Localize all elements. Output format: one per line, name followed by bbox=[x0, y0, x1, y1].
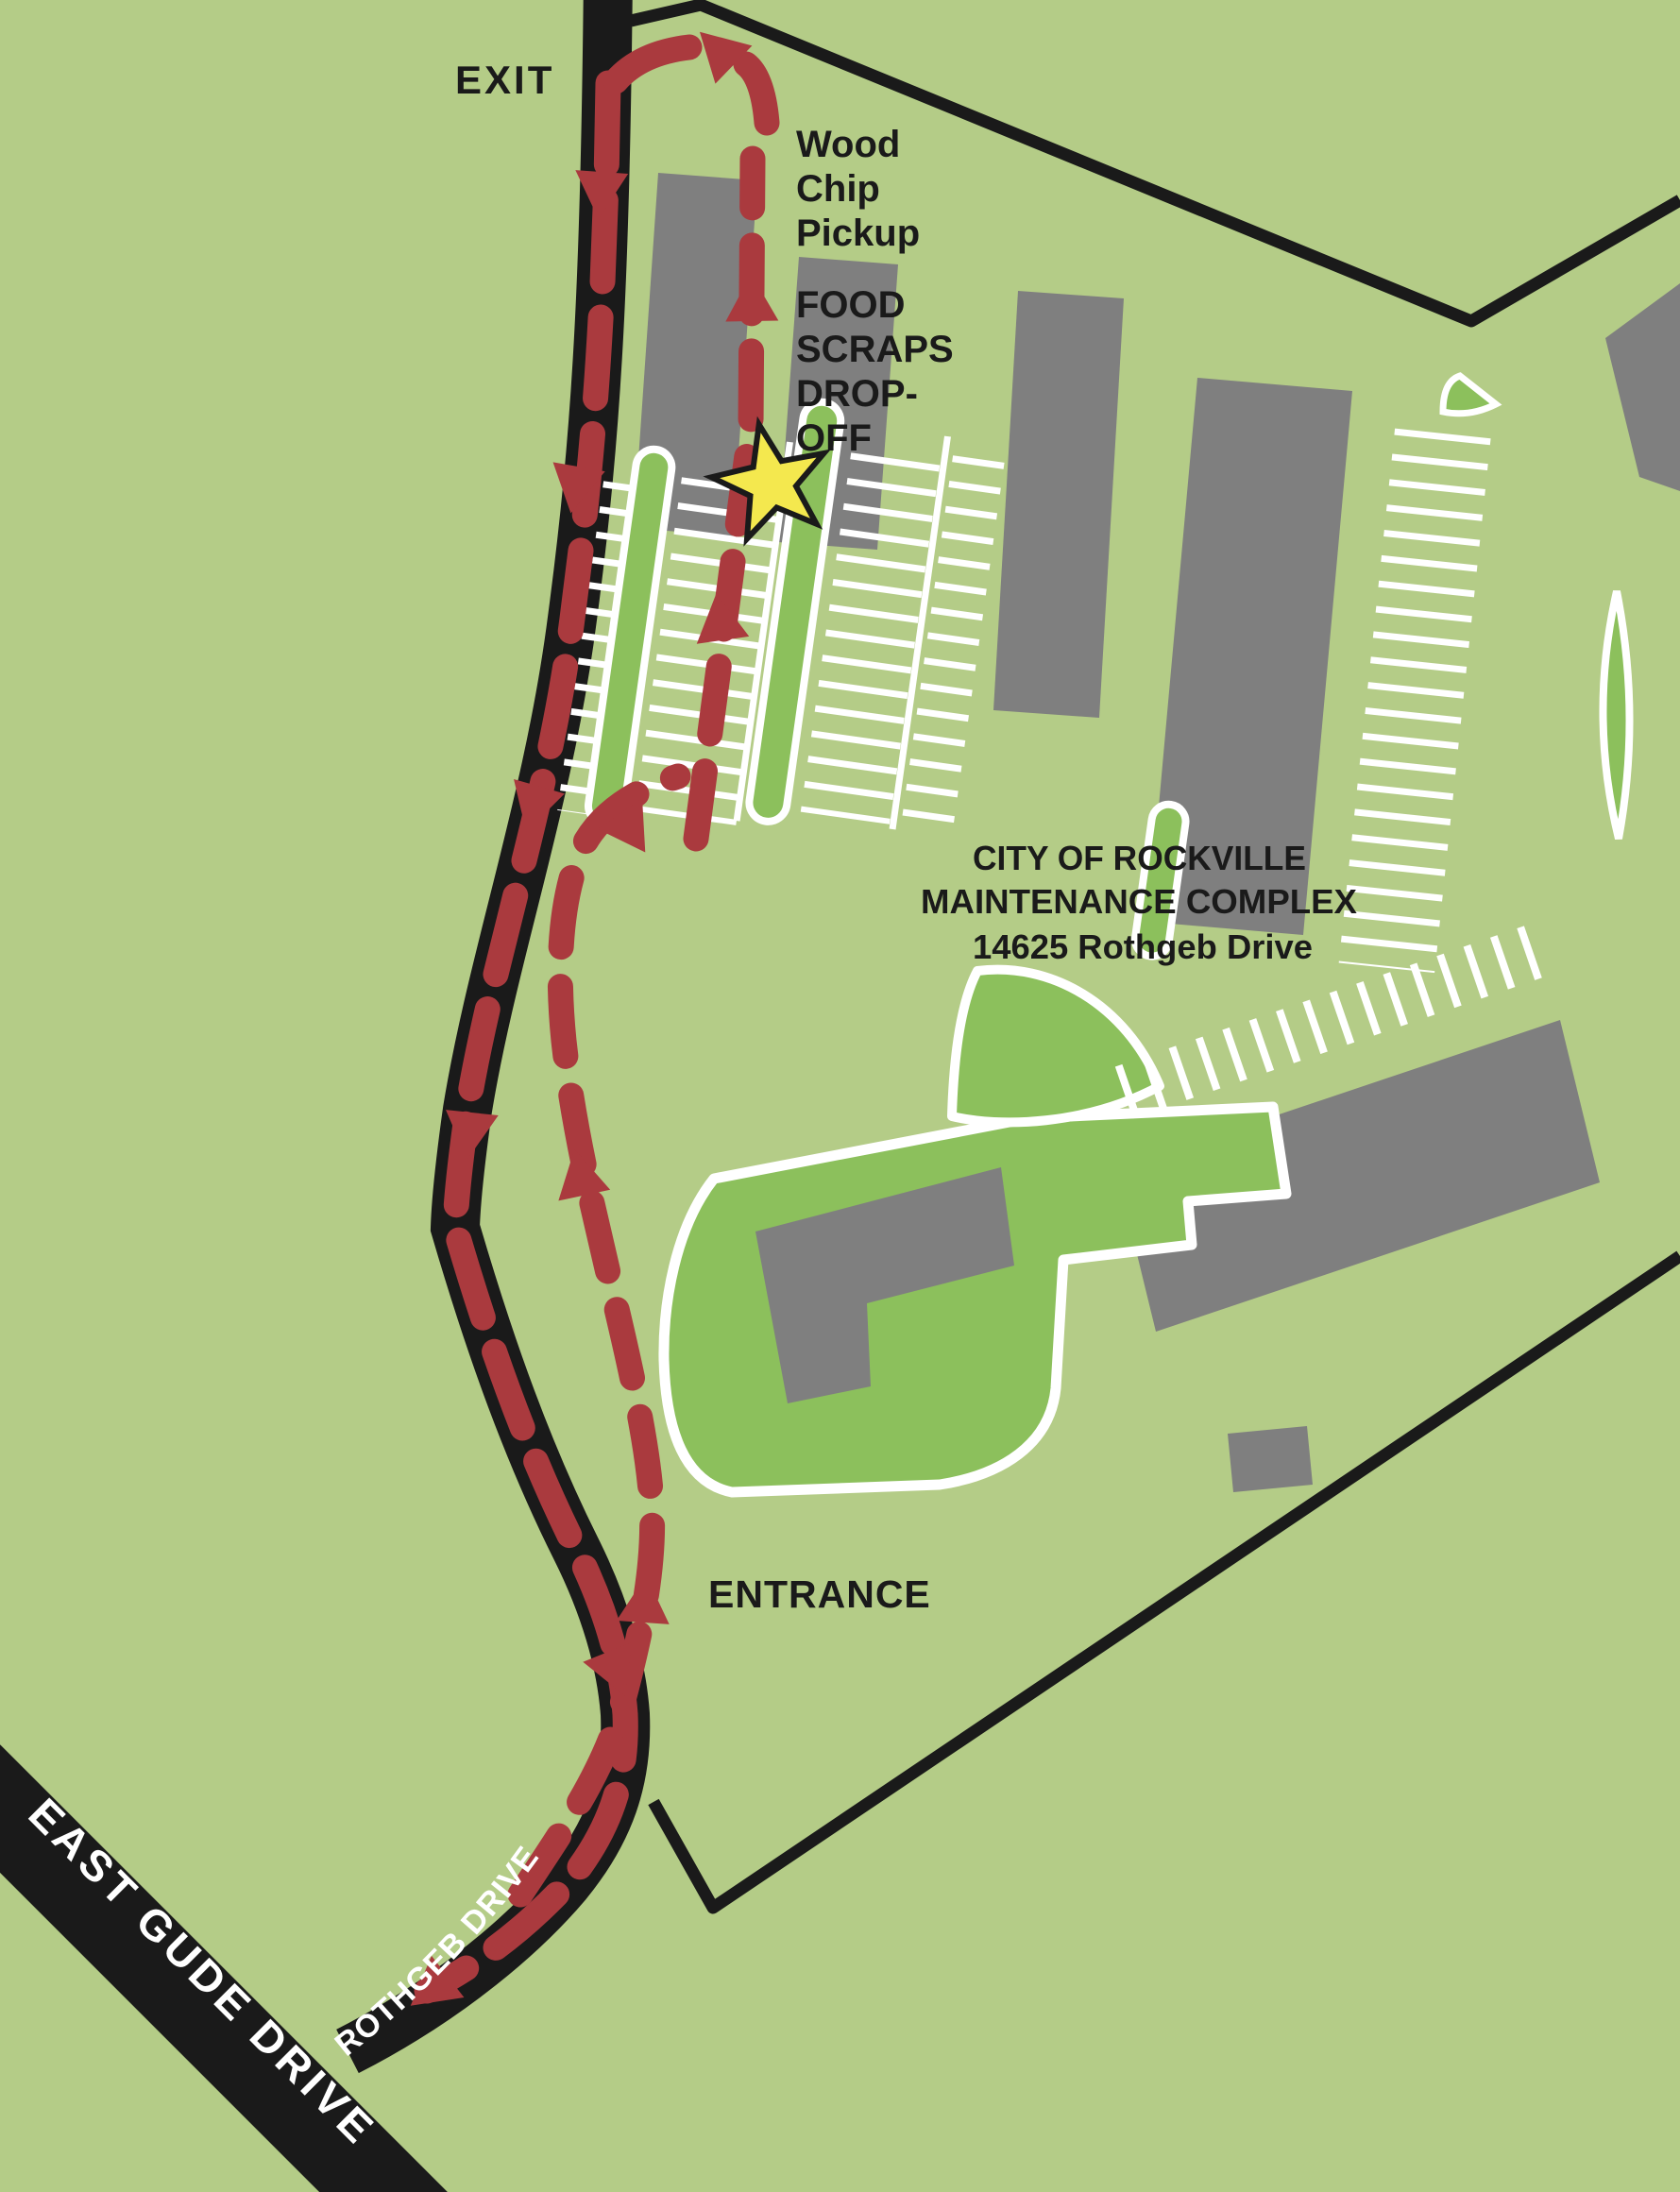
complex-title-line1: CITY OF ROCKVILLE bbox=[973, 839, 1306, 877]
food-scraps-line2: SCRAPS bbox=[796, 329, 954, 370]
complex-title-block: CITY OF ROCKVILLE MAINTENANCE COMPLEX 14… bbox=[921, 839, 1357, 966]
wood-chip-line1: Wood bbox=[796, 124, 900, 165]
rockville-maintenance-complex-map: EXIT Wood Chip Pickup FOOD SCRAPS DROP- … bbox=[0, 0, 1680, 2192]
complex-title-line2: MAINTENANCE COMPLEX bbox=[921, 882, 1357, 921]
exit-label: EXIT bbox=[455, 58, 554, 102]
map-canvas: EXIT Wood Chip Pickup FOOD SCRAPS DROP- … bbox=[0, 0, 1680, 2192]
building-small-square bbox=[1228, 1426, 1313, 1492]
wood-chip-line3: Pickup bbox=[796, 212, 920, 254]
food-scraps-line4: OFF bbox=[796, 417, 872, 459]
wood-chip-line2: Chip bbox=[796, 168, 880, 210]
food-scraps-line1: FOOD bbox=[796, 284, 906, 326]
entrance-label: ENTRANCE bbox=[708, 1572, 931, 1616]
complex-address: 14625 Rothgeb Drive bbox=[973, 927, 1313, 966]
food-scraps-line3: DROP- bbox=[796, 373, 918, 415]
